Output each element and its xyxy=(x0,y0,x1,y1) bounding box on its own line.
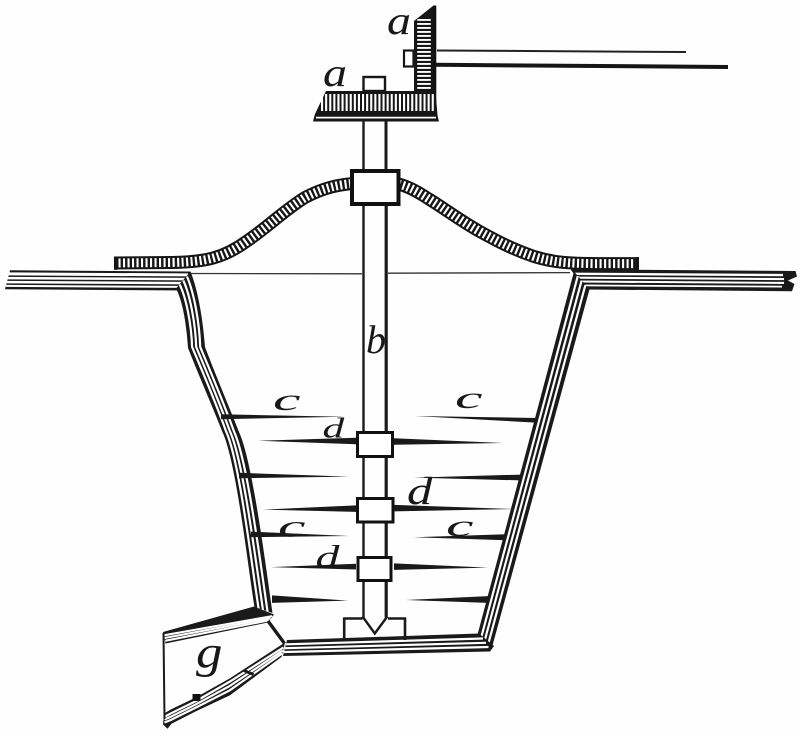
svg-text:d: d xyxy=(316,538,340,575)
svg-text:a: a xyxy=(387,0,411,43)
svg-text:c: c xyxy=(446,508,474,543)
svg-text:c: c xyxy=(278,509,306,544)
svg-text:a: a xyxy=(323,51,347,95)
svg-text:d: d xyxy=(407,470,433,513)
svg-text:c: c xyxy=(455,380,483,415)
svg-text:c: c xyxy=(273,382,301,417)
svg-text:d: d xyxy=(323,412,345,444)
svg-text:g: g xyxy=(196,627,222,678)
svg-text:b: b xyxy=(366,317,386,362)
